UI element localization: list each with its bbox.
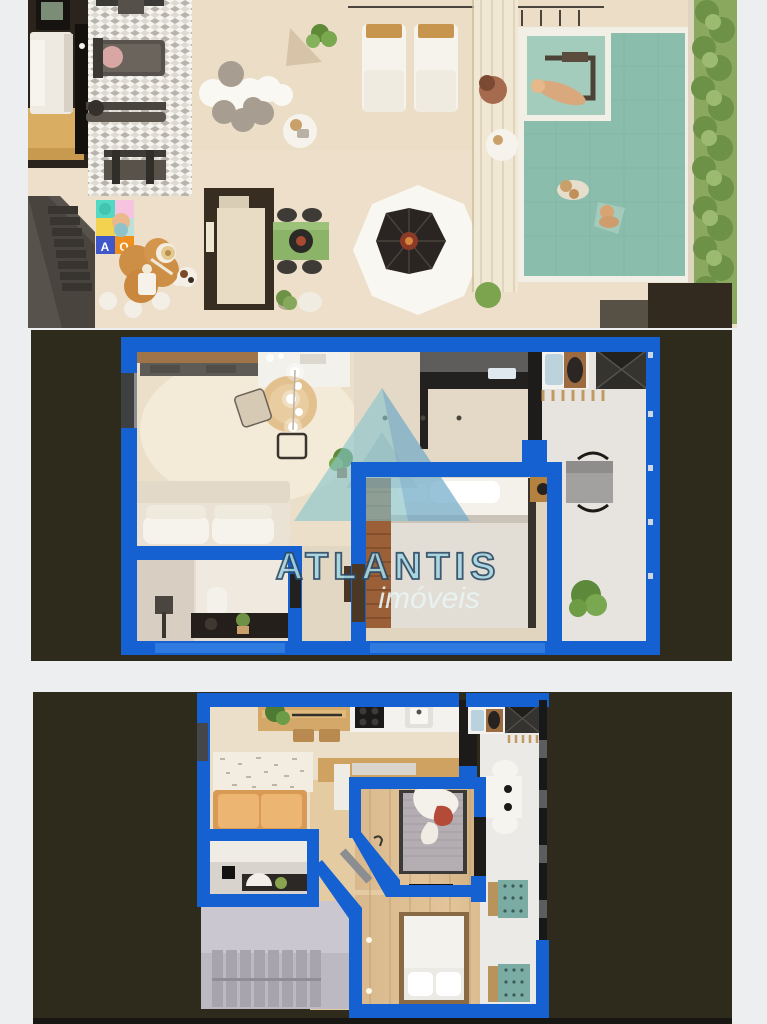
svg-text:A: A	[101, 240, 110, 254]
svg-text:imóveis: imóveis	[378, 582, 480, 615]
